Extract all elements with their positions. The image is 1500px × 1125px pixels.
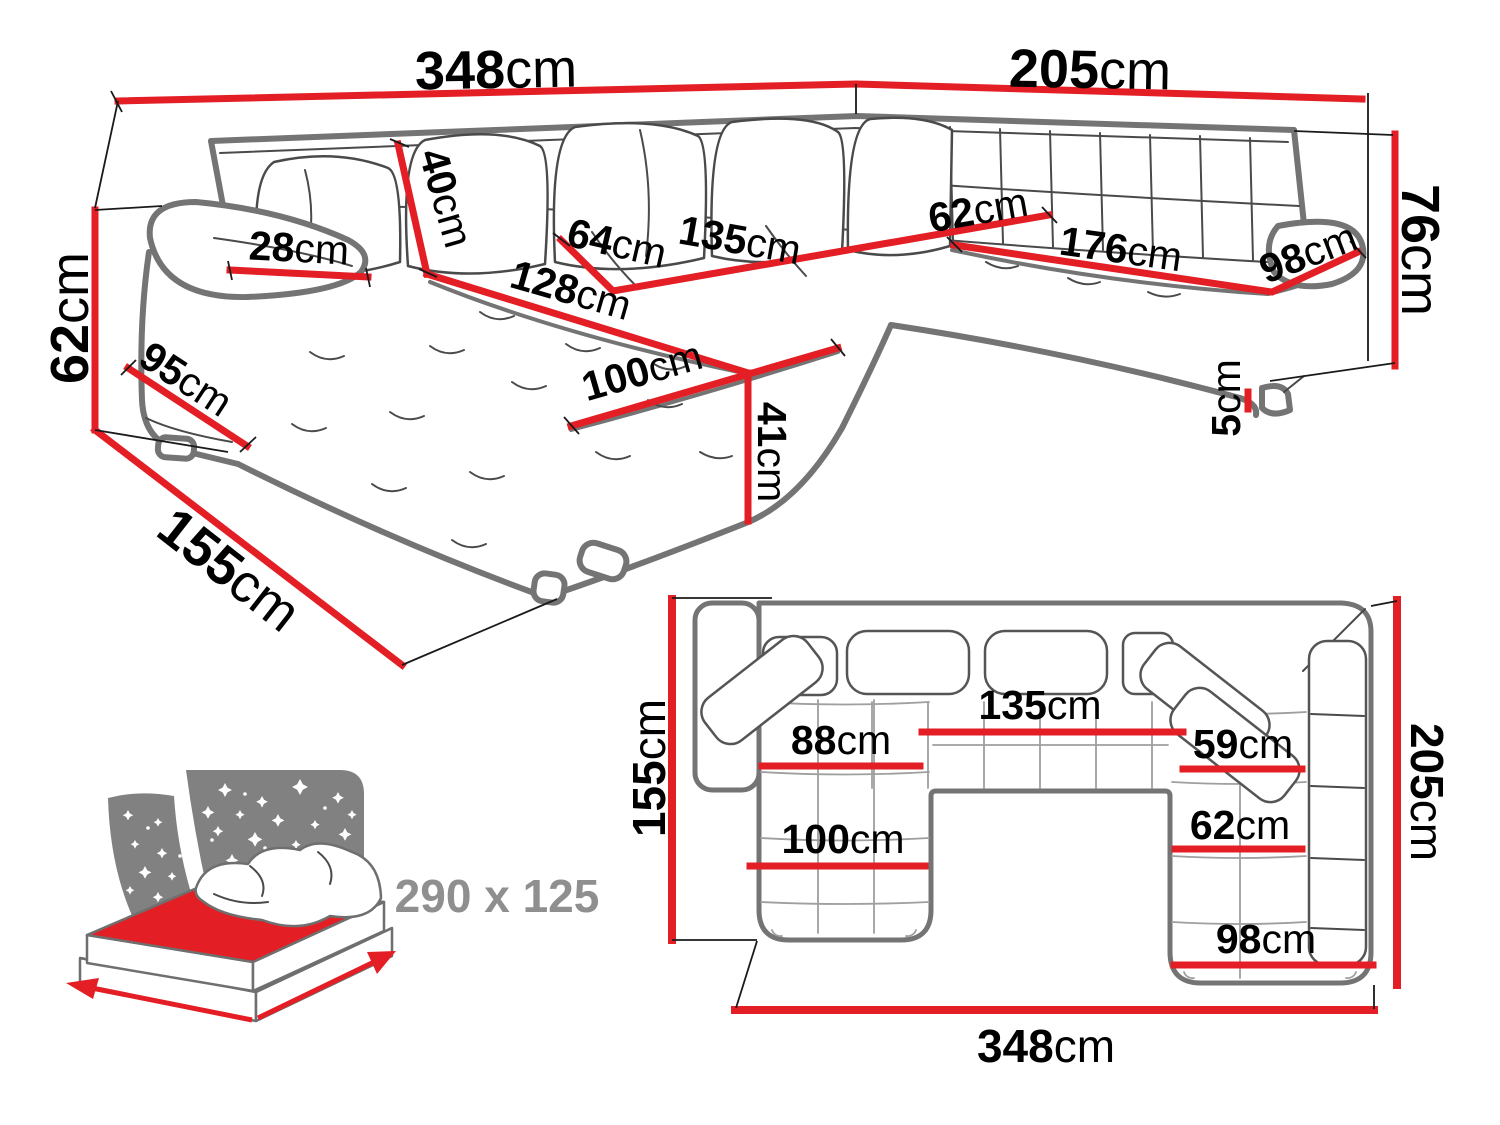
bench-front-bottom-edge: [891, 325, 1256, 415]
dim-label-left-side-height: 62cm: [40, 252, 100, 384]
dim-label-seat-height: 41cm: [749, 402, 795, 502]
dim-label-top-right-depth: 205cm: [1008, 39, 1171, 102]
sofa-back-left-edge: [211, 141, 224, 211]
fold-out-bed: [66, 843, 396, 1021]
plan-label-right-seat-upper-width: 59cm: [1193, 721, 1293, 767]
dim-label-leg-height: 5cm: [1203, 359, 1249, 436]
plan-label-chaise-width: 100cm: [781, 816, 904, 862]
dim-label-armrest-side-depth: 95cm: [131, 332, 240, 425]
dim-label-backrest-height: 76cm: [1390, 184, 1450, 316]
plan-label-right-seat-width: 62cm: [1190, 802, 1290, 848]
furniture-dimension-diagram: 348cm 205cm 62cm 155cm 76cm 5cm 41cm 28c…: [0, 0, 1500, 1125]
plan-label-bottom-width: 348cm: [977, 1020, 1115, 1072]
plan-label-middle-seat-width: 135cm: [978, 682, 1101, 728]
plan-label-chaise-upper-width: 88cm: [791, 717, 891, 763]
plan-label-right-depth: 205cm: [1401, 723, 1453, 861]
perspective-sofa-drawing: [141, 116, 1363, 604]
dim-line-348-205-top: [118, 84, 1362, 101]
plan-label-right-section-width: 98cm: [1216, 916, 1316, 962]
sleeping-function-icon: 290 x 125: [66, 770, 599, 1021]
sofa-legs: [157, 376, 1304, 604]
dim-label-armrest-width: 28cm: [248, 222, 351, 273]
dim-label-right-seat-length: 176cm: [1057, 218, 1185, 281]
dim-label-top-width: 348cm: [414, 39, 577, 102]
plan-label-left-depth: 155cm: [623, 699, 675, 837]
plan-right-back-cushion: [1309, 641, 1366, 965]
diagram-canvas: 348cm 205cm 62cm 155cm 76cm 5cm 41cm 28c…: [0, 0, 1500, 1125]
bed-size-label: 290 x 125: [395, 870, 600, 922]
dim-label-chaise-depth: 155cm: [147, 496, 312, 643]
